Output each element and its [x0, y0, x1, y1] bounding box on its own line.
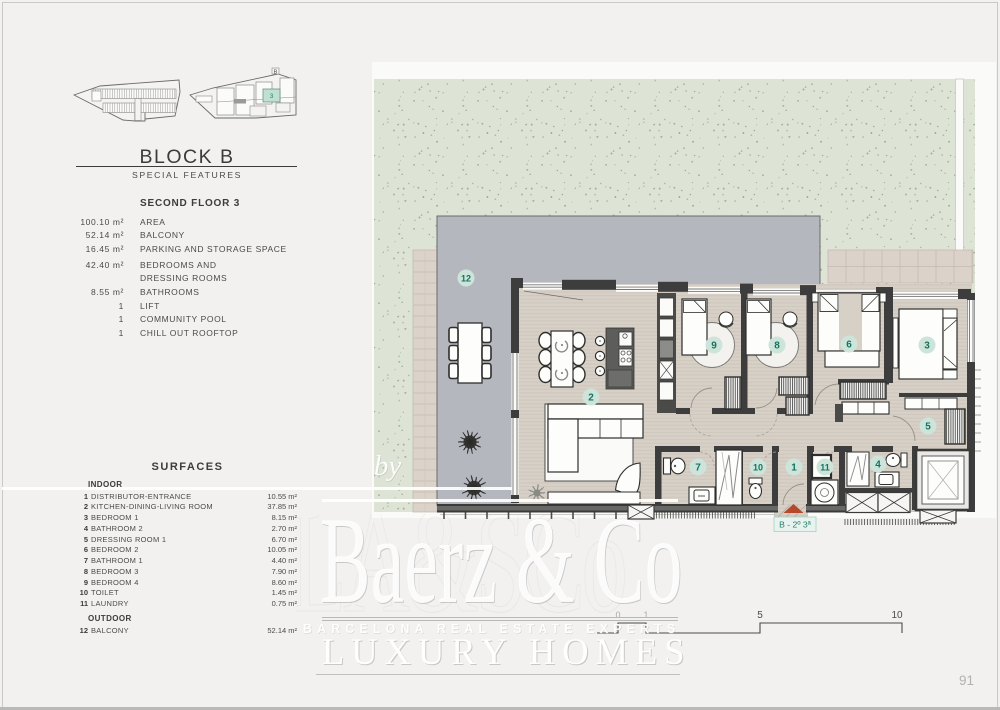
svg-text:0: 0 — [615, 610, 620, 620]
svg-text:10: 10 — [891, 610, 903, 621]
svg-text:6: 6 — [846, 340, 852, 351]
svg-text:3: 3 — [924, 341, 930, 352]
svg-text:7: 7 — [695, 463, 701, 474]
svg-text:1: 1 — [791, 463, 797, 474]
svg-text:B - 2º 3ª: B - 2º 3ª — [779, 520, 811, 530]
svg-text:2: 2 — [588, 393, 594, 404]
svg-text:10: 10 — [753, 463, 763, 473]
svg-text:1: 1 — [643, 610, 648, 620]
svg-text:8: 8 — [774, 341, 780, 352]
svg-text:11: 11 — [820, 463, 830, 473]
svg-text:9: 9 — [711, 341, 717, 352]
svg-text:4: 4 — [875, 460, 881, 471]
svg-text:5: 5 — [925, 422, 931, 433]
svg-text:12: 12 — [461, 274, 471, 284]
svg-text:91: 91 — [959, 673, 974, 688]
svg-text:5: 5 — [757, 610, 763, 621]
